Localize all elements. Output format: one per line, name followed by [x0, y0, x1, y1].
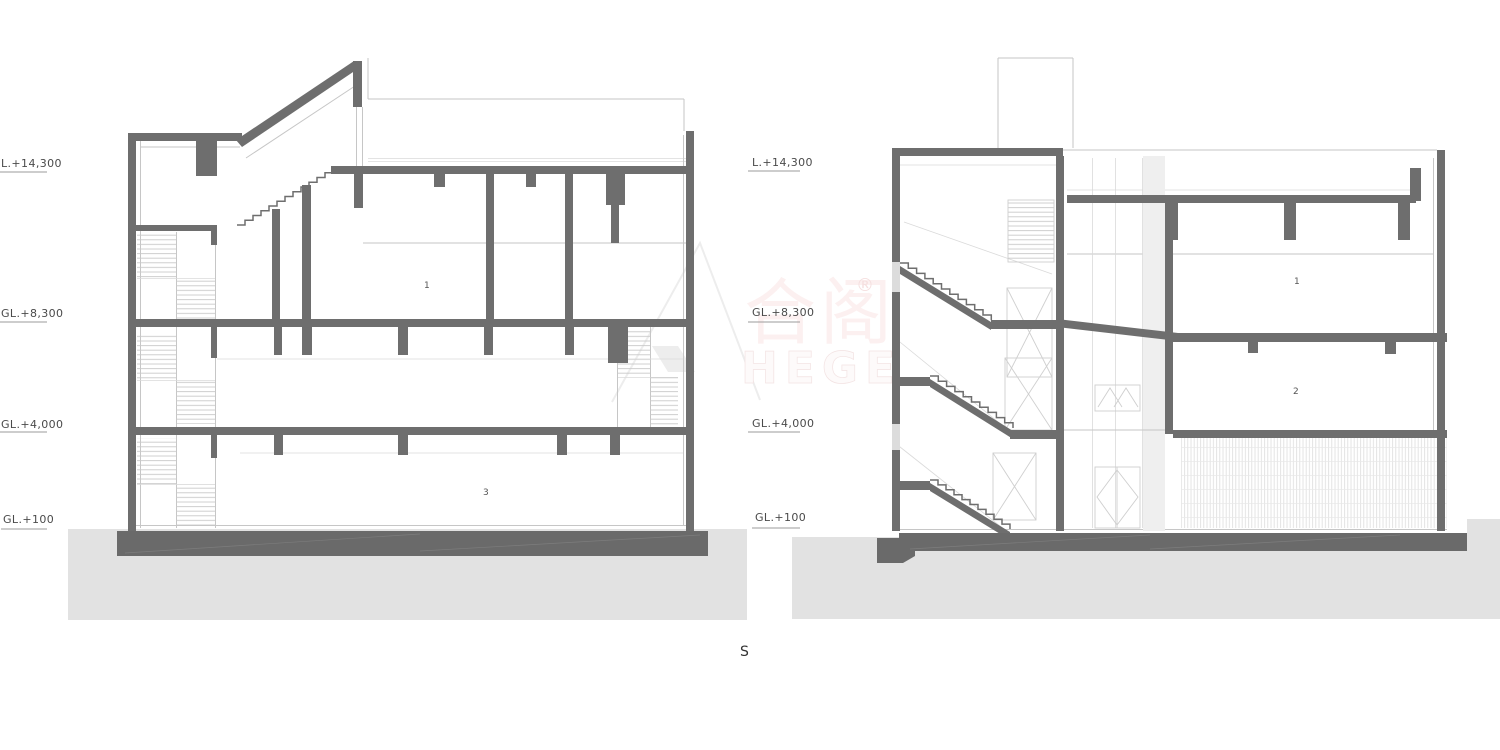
- left-wall: [128, 133, 136, 531]
- watermark-registered-mark: ®: [856, 275, 874, 296]
- floor2-bottom-slab: [1173, 430, 1447, 438]
- room-label: 3: [483, 488, 489, 498]
- foundation-block: [877, 538, 915, 563]
- roof-slope: [236, 61, 359, 147]
- stair-hatch: [176, 380, 215, 424]
- mezzanine-slab: [136, 225, 217, 231]
- parapet-block: [196, 139, 217, 176]
- scissor-stair: [892, 263, 1057, 540]
- left-wall: [892, 148, 900, 531]
- stair-hatch: [137, 335, 176, 380]
- column: [486, 174, 494, 320]
- roof-peak-wall: [353, 61, 362, 107]
- rooftop-penthouse: [998, 58, 1073, 148]
- elevation-label: GL.+100: [3, 513, 54, 526]
- right-wall: [686, 131, 694, 531]
- elevator-shaft: [1056, 156, 1173, 531]
- stair-hatch: [176, 278, 215, 319]
- elevation-label: GL.+8,300: [1, 307, 63, 320]
- elevation-label: GL.+4,000: [1, 418, 63, 431]
- elevation-label: GL.+100: [755, 511, 806, 524]
- upper-slab: [1067, 195, 1416, 203]
- elevator-wall-left: [1056, 156, 1064, 531]
- hanging-beam: [1284, 203, 1296, 240]
- slab-4000: [136, 427, 694, 435]
- hanging-beam: [434, 174, 445, 187]
- slab-14300: [331, 166, 694, 174]
- beam-column: [606, 174, 625, 205]
- right-wall: [1437, 150, 1445, 531]
- elevation-label: L.+14,300: [752, 156, 813, 169]
- elevator-transom: [1095, 385, 1140, 411]
- right-building-section: 1 2: [792, 58, 1500, 619]
- watermark-latin-text: HEGE: [741, 343, 902, 394]
- floor2-slab: [1173, 333, 1447, 342]
- elevation-label: GL.+8,300: [752, 306, 814, 319]
- stair-hatch: [137, 438, 176, 484]
- slab-8300: [136, 319, 694, 327]
- elevation-label: L.+14,300: [1, 157, 62, 170]
- stair-post: [302, 185, 311, 320]
- left-elevation-labels: L.+14,300 GL.+8,300 GL.+4,000 GL.+100: [0, 157, 63, 529]
- architectural-sections-svg: 合阁 ® HEGE: [0, 0, 1500, 750]
- hanging-beam: [1398, 203, 1410, 240]
- main-stair-steps: [237, 168, 333, 225]
- room-label: 1: [1294, 277, 1300, 287]
- elevation-label: GL.+4,000: [752, 417, 814, 430]
- room-label: 2: [1293, 387, 1299, 397]
- stair-hatch: [1008, 200, 1054, 262]
- section-drawing-canvas: 合阁 ® HEGE: [0, 0, 1500, 750]
- stair-hatch: [137, 232, 176, 278]
- stair-hatch: [650, 377, 678, 427]
- right-parapet: [1410, 168, 1421, 201]
- elevator-door: [1095, 467, 1140, 528]
- top-left-slab: [128, 133, 242, 141]
- left-building-section: 1 3: [68, 58, 747, 620]
- top-slab: [892, 148, 1063, 156]
- stair-landing: [991, 320, 1057, 329]
- garage-hatch: [1181, 438, 1447, 528]
- stair-post: [272, 209, 280, 320]
- stair-hatch: [176, 484, 215, 528]
- section-mark: S: [740, 644, 749, 660]
- hanging-beam: [1166, 203, 1178, 240]
- column: [565, 174, 573, 320]
- left-stair-shaft: [137, 141, 216, 528]
- room-label: 1: [424, 281, 430, 291]
- hanging-beam: [526, 174, 536, 187]
